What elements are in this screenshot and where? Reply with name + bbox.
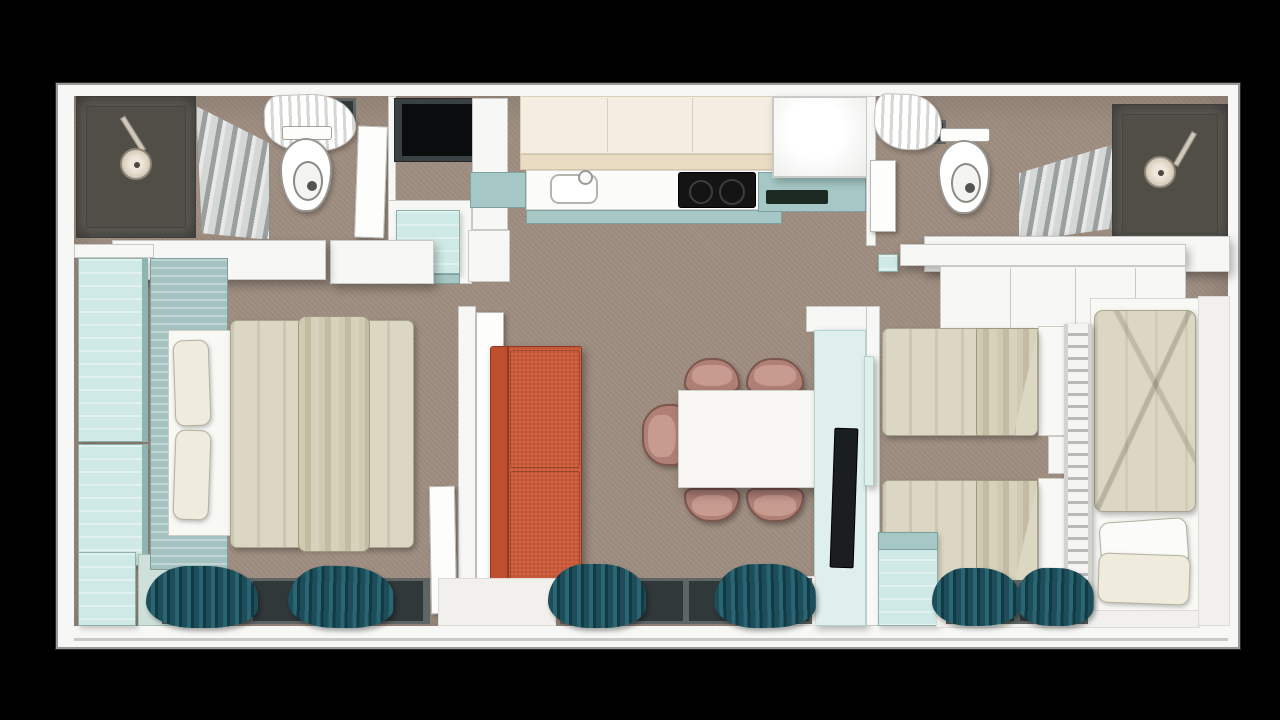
curtain (932, 568, 1020, 626)
curtain (548, 564, 646, 628)
kitchen-upper-cabinets (520, 96, 782, 154)
cabinet-seam (1075, 268, 1076, 330)
folded-blanket (298, 316, 370, 552)
curtain (1015, 567, 1094, 626)
pillow (173, 339, 212, 426)
curtain (146, 566, 258, 628)
chair-seat (692, 365, 732, 387)
cabinet-seam (1010, 268, 1011, 330)
wardrobe-column-b (78, 444, 148, 566)
fridge-tall-cabinet (772, 96, 868, 178)
tv-screen (830, 428, 859, 569)
bunk-bed-duvet (1094, 310, 1196, 512)
curtain (713, 563, 816, 629)
sofa (490, 346, 582, 598)
induction-hob (678, 172, 756, 208)
floorplan-render (0, 0, 1280, 720)
bottom-wall-line (74, 638, 1228, 641)
pillow (1097, 552, 1191, 605)
bathroom-left-door (354, 126, 388, 239)
sofa-cushion (510, 350, 580, 468)
kitchen-faucet (578, 170, 593, 185)
chair-seat (754, 365, 795, 387)
cabinet-seam (607, 98, 608, 152)
toilet-flush-left (307, 181, 317, 191)
shower-head-dot-left (134, 162, 140, 168)
toilet-flush-right (965, 183, 975, 193)
curtain (287, 565, 394, 629)
chair-seat (648, 415, 675, 457)
pillow (172, 429, 211, 520)
kitchen-base-units (526, 210, 782, 224)
partition-glass-edge (864, 356, 874, 486)
entry-floor-strip (438, 578, 556, 626)
sofa-backrest (491, 347, 509, 597)
chair-seat (754, 495, 795, 517)
kitchen-cabinet-underside (520, 154, 782, 170)
shower-head-dot-right (1158, 170, 1164, 176)
cabinet-seam (692, 98, 693, 152)
hall-overhead-shelf (330, 240, 434, 284)
dining-table (678, 390, 836, 488)
bathroom-right-door (870, 160, 896, 232)
wardrobe-top-panel (74, 244, 154, 258)
entrance-doorway (402, 104, 472, 156)
vanity-teal-shelf (878, 254, 898, 272)
wardrobe-base-cube (78, 552, 136, 626)
twin-room-cabinet-top (878, 532, 938, 550)
hob-ring (689, 180, 713, 204)
wardrobe-column-a (78, 258, 148, 442)
floor-white-strip (1198, 296, 1230, 626)
hall-tall-column (472, 98, 508, 230)
hob-ring (719, 179, 745, 205)
chair-seat (692, 495, 732, 517)
drainer-tray (766, 190, 828, 204)
dining-chair (642, 404, 682, 466)
hall-counter (470, 172, 526, 208)
twin-overhead-lid (900, 244, 1186, 266)
hall-low-cabinet (468, 230, 510, 282)
